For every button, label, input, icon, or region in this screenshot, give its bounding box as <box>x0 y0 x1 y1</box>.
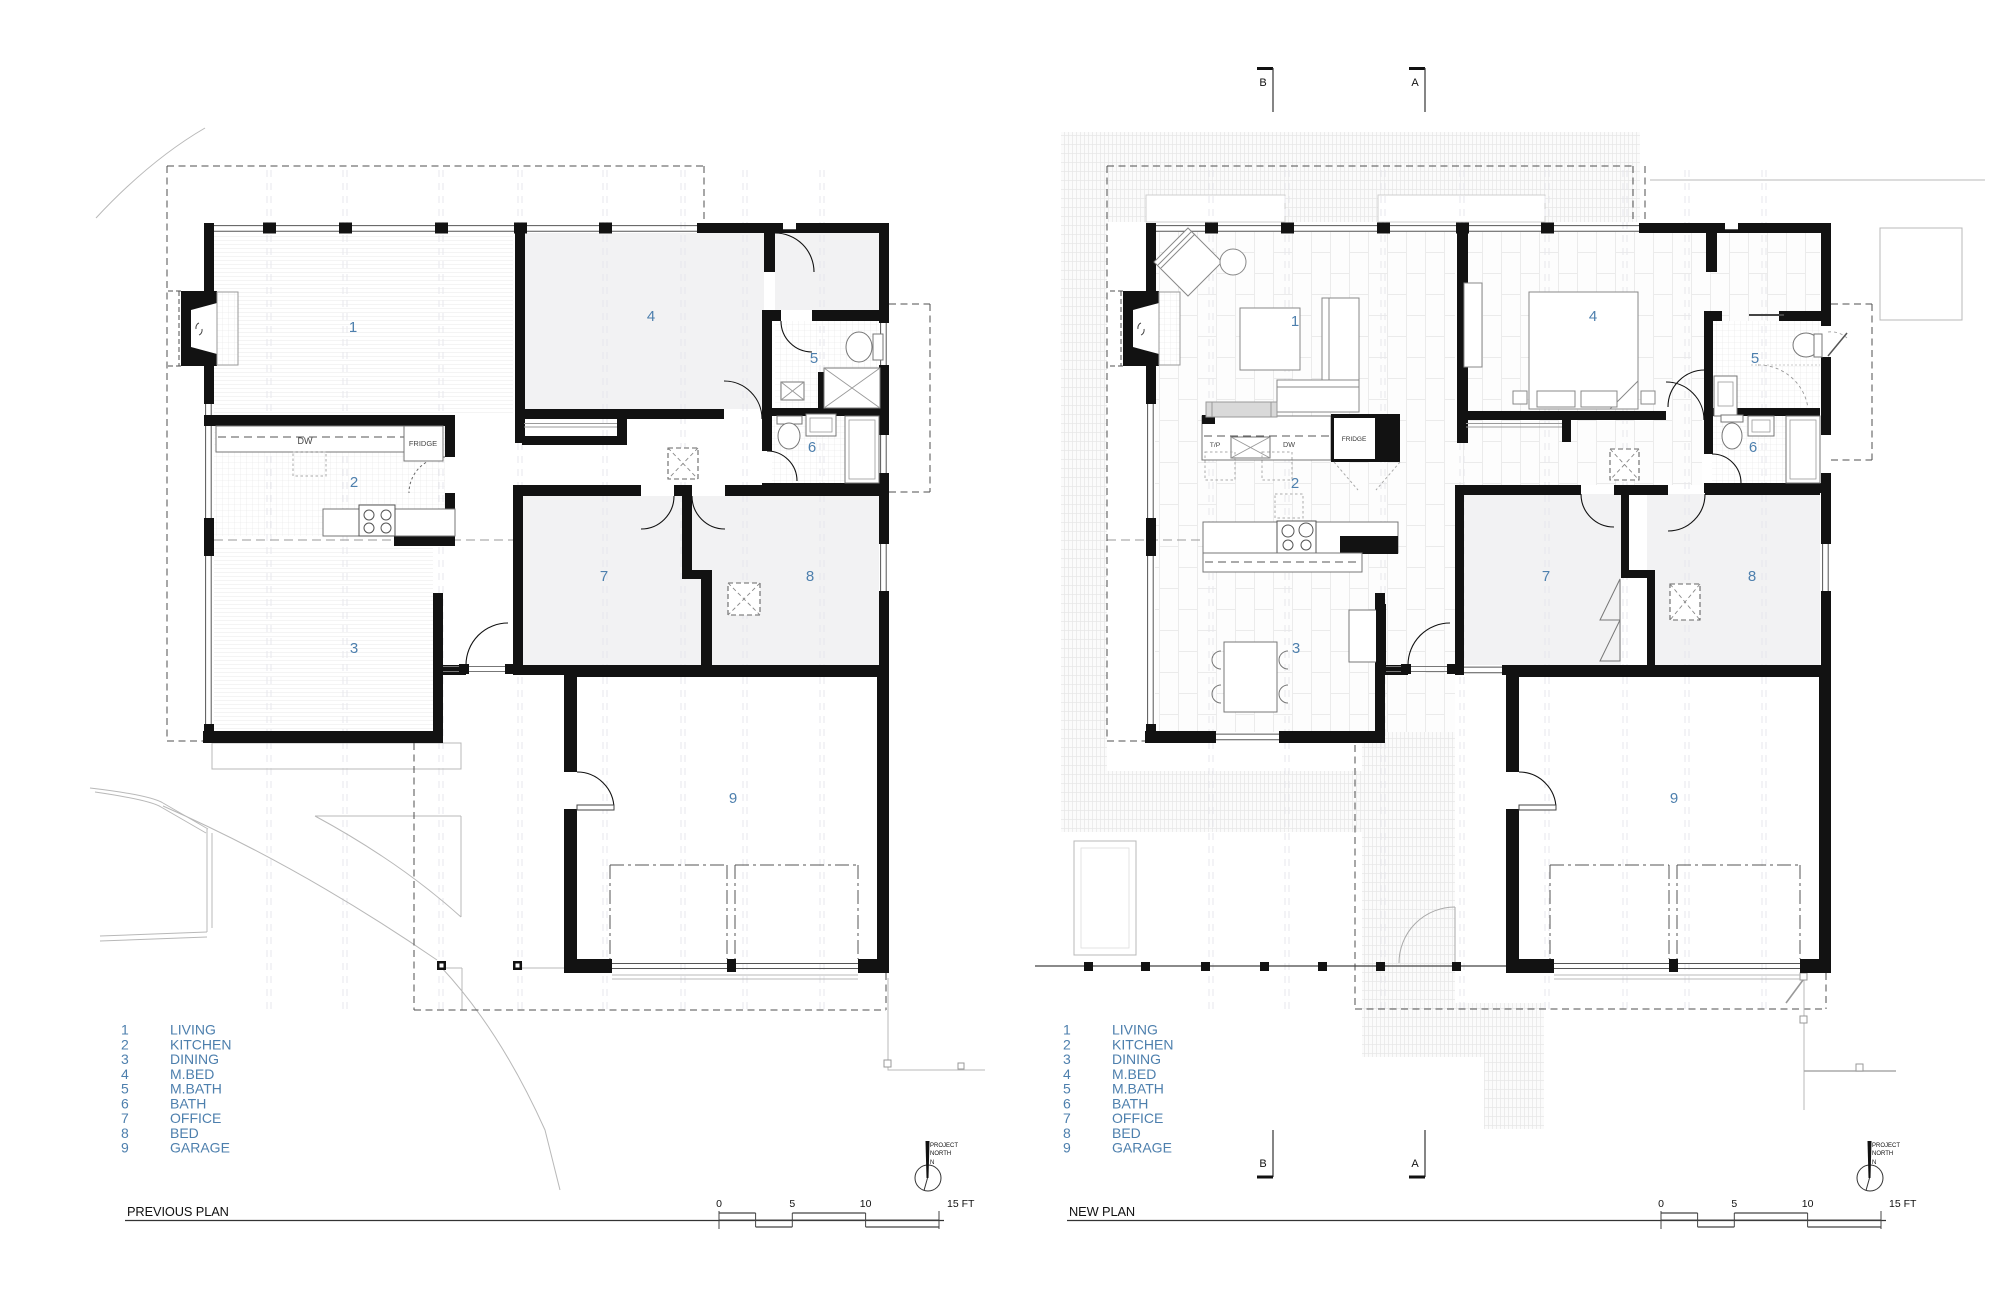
svg-text:M.BED: M.BED <box>170 1066 214 1082</box>
svg-text:5: 5 <box>789 1198 795 1210</box>
svg-text:9: 9 <box>1063 1140 1071 1156</box>
svg-text:4: 4 <box>121 1066 129 1082</box>
svg-text:6: 6 <box>121 1095 129 1111</box>
svg-text:LIVING: LIVING <box>1112 1022 1158 1038</box>
svg-text:1: 1 <box>121 1022 129 1038</box>
svg-text:8: 8 <box>1748 568 1756 585</box>
svg-text:BATH: BATH <box>170 1095 206 1111</box>
svg-text:2: 2 <box>1063 1036 1071 1052</box>
svg-text:B: B <box>1259 1158 1266 1170</box>
svg-text:7: 7 <box>121 1110 129 1126</box>
svg-text:M.BATH: M.BATH <box>1112 1081 1164 1097</box>
svg-text:4: 4 <box>1589 308 1597 325</box>
svg-text:9: 9 <box>729 790 737 807</box>
svg-text:3: 3 <box>1063 1051 1071 1067</box>
svg-text:6: 6 <box>808 439 816 456</box>
svg-text:7: 7 <box>1542 568 1550 585</box>
svg-text:6: 6 <box>1063 1095 1071 1111</box>
svg-text:15 FT: 15 FT <box>947 1198 975 1210</box>
svg-text:NORTH: NORTH <box>1872 1151 1893 1157</box>
svg-text:N: N <box>930 1160 934 1166</box>
svg-text:GARAGE: GARAGE <box>1112 1140 1172 1156</box>
svg-text:10: 10 <box>860 1198 872 1210</box>
svg-text:M.BED: M.BED <box>1112 1066 1156 1082</box>
svg-text:M.BATH: M.BATH <box>170 1081 222 1097</box>
svg-text:8: 8 <box>121 1125 129 1141</box>
svg-text:5: 5 <box>1751 350 1759 367</box>
svg-text:A: A <box>1411 77 1419 89</box>
svg-text:3: 3 <box>350 640 358 657</box>
svg-text:2: 2 <box>121 1036 129 1052</box>
svg-text:BED: BED <box>1112 1125 1141 1141</box>
svg-text:3: 3 <box>121 1051 129 1067</box>
svg-text:KITCHEN: KITCHEN <box>170 1036 231 1052</box>
svg-text:4: 4 <box>1063 1066 1071 1082</box>
svg-text:T/P: T/P <box>1210 442 1221 449</box>
svg-text:A: A <box>1411 1158 1419 1170</box>
svg-text:DW: DW <box>298 436 313 446</box>
svg-text:NORTH: NORTH <box>930 1151 951 1157</box>
svg-text:OFFICE: OFFICE <box>170 1110 221 1126</box>
svg-text:2: 2 <box>350 474 358 491</box>
svg-text:PREVIOUS PLAN: PREVIOUS PLAN <box>127 1204 229 1219</box>
svg-text:8: 8 <box>806 568 814 585</box>
svg-text:BED: BED <box>170 1125 199 1141</box>
svg-text:5: 5 <box>810 350 818 367</box>
svg-text:DINING: DINING <box>1112 1051 1161 1067</box>
svg-text:1: 1 <box>349 319 357 336</box>
svg-text:FRIDGE: FRIDGE <box>409 439 437 448</box>
svg-text:B: B <box>1259 77 1266 89</box>
svg-text:2: 2 <box>1291 475 1299 492</box>
svg-text:FRIDGE: FRIDGE <box>1342 436 1367 443</box>
svg-text:N: N <box>1872 1160 1876 1166</box>
svg-text:GARAGE: GARAGE <box>170 1140 230 1156</box>
svg-text:PROJECT: PROJECT <box>930 1143 958 1149</box>
svg-text:KITCHEN: KITCHEN <box>1112 1036 1173 1052</box>
svg-text:BATH: BATH <box>1112 1095 1148 1111</box>
svg-text:1: 1 <box>1291 313 1299 330</box>
svg-text:PROJECT: PROJECT <box>1872 1143 1900 1149</box>
svg-text:3: 3 <box>1292 640 1300 657</box>
svg-text:7: 7 <box>600 568 608 585</box>
svg-text:0: 0 <box>716 1198 722 1210</box>
svg-text:9: 9 <box>1670 790 1678 807</box>
svg-text:7: 7 <box>1063 1110 1071 1126</box>
svg-text:5: 5 <box>121 1081 129 1097</box>
svg-text:5: 5 <box>1063 1081 1071 1097</box>
svg-text:DINING: DINING <box>170 1051 219 1067</box>
svg-text:NEW PLAN: NEW PLAN <box>1069 1204 1135 1219</box>
svg-text:1: 1 <box>1063 1022 1071 1038</box>
svg-text:15 FT: 15 FT <box>1889 1198 1917 1210</box>
svg-text:OFFICE: OFFICE <box>1112 1110 1163 1126</box>
svg-text:0: 0 <box>1658 1198 1664 1210</box>
svg-text:9: 9 <box>121 1140 129 1156</box>
svg-text:8: 8 <box>1063 1125 1071 1141</box>
svg-text:10: 10 <box>1802 1198 1814 1210</box>
svg-text:DW: DW <box>1283 440 1295 449</box>
svg-text:4: 4 <box>647 308 655 325</box>
svg-text:LIVING: LIVING <box>170 1022 216 1038</box>
svg-text:6: 6 <box>1749 439 1757 456</box>
svg-text:5: 5 <box>1731 1198 1737 1210</box>
